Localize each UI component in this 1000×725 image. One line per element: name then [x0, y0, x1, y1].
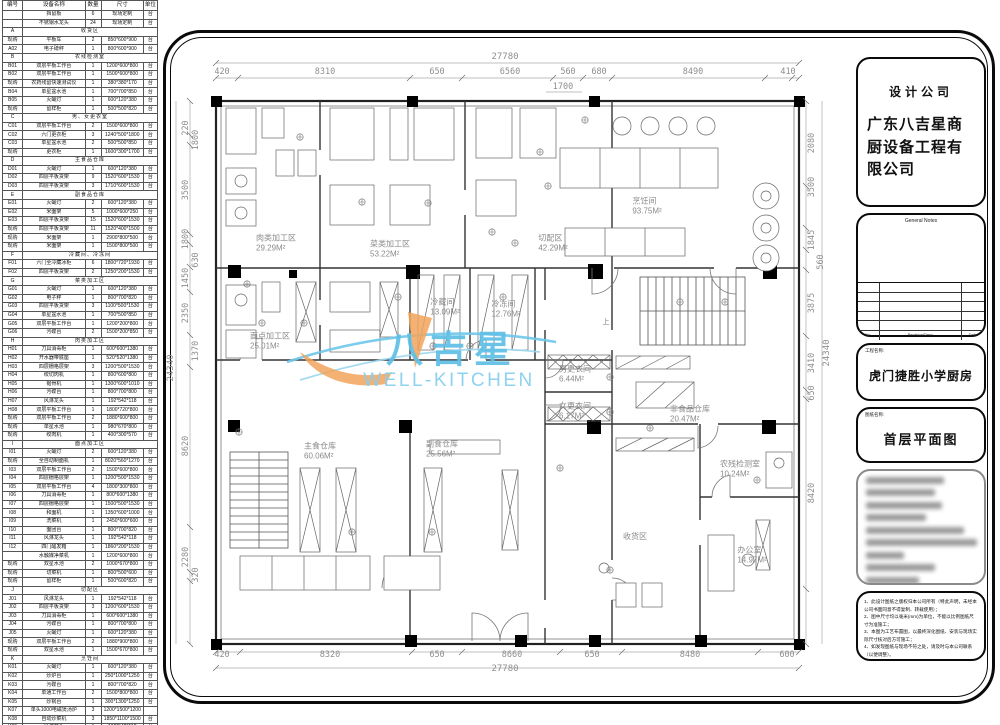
- table-row: 现购切菜机1800*500*600台: [3, 569, 158, 578]
- equipment-table: 编号设备名称数量尺寸单位 挡鼠板6现场定制台不锈钢水龙头24现场定制台A收货区现…: [2, 0, 158, 725]
- titleblock-drawing: 图纸名称: 首层平面图: [856, 407, 986, 463]
- table-row: H05锯骨机11300*600*1010台: [3, 380, 158, 389]
- table-row: D02四层平板货架91520*600*1530台: [3, 174, 158, 183]
- table-row: C03单星盆水池2500*500*850台: [3, 139, 158, 148]
- table-row: 现购绞肉机1400*300*570台: [3, 432, 158, 441]
- column-header: 单位: [143, 1, 157, 11]
- table-row: H01刀具消毒柜1600*600*1380台: [3, 346, 158, 355]
- project-label: 工程名称:: [865, 348, 884, 354]
- column-header: 编号: [3, 1, 23, 11]
- table-section-row: E副食品仓库: [3, 191, 158, 200]
- titleblock-footnotes: 1、此设计图纸之版权归本公司所有（特此声明，未经本公司书面同意不得复制、转载使用…: [856, 591, 986, 661]
- table-row: 现购农药残留快速测试仪1380*380*170台: [3, 79, 158, 88]
- table-row: 现购米面架11500*800*500台: [3, 243, 158, 252]
- table-row: I01灭蝇灯2600*120*380台: [3, 449, 158, 458]
- table-section-row: F冷藏间、冷冻间: [3, 251, 158, 260]
- table-section-row: C男、女更衣室: [3, 114, 158, 123]
- table-row: K02炒炉台1250*1000*1250台: [3, 672, 158, 681]
- table-row: D03四层平板货架31710*600*1530台: [3, 182, 158, 191]
- drawing-name: 首层平面图: [858, 429, 984, 448]
- table-row: K01灭蝇灯1600*120*380台: [3, 664, 158, 673]
- design-company-label: 设计公司: [858, 83, 984, 100]
- table-section-row: H肉类加工区: [3, 337, 158, 346]
- table-row: E03四层平板货架151520*600*1530台: [3, 217, 158, 226]
- titleblock-company: 设计公司 广东八吉星商厨设备工程有限公司: [856, 57, 986, 207]
- table-row: G04单星盆水池1700*500*850台: [3, 311, 158, 320]
- table-section-row: A收货区: [3, 28, 158, 37]
- titleblock-redacted: [856, 469, 986, 585]
- general-notes-label: General Notes: [858, 218, 984, 224]
- table-section-row: G菜类加工区: [3, 277, 158, 286]
- table-row: D01灭蝇灯1600*120*380台: [3, 165, 158, 174]
- revision-no-label: No.: [858, 331, 880, 340]
- table-row: J04污碟台1800*700*800台: [3, 621, 158, 630]
- titleblock-project: 工程名称: 虎门捷胜小学厨房: [856, 343, 986, 401]
- column-header: 数量: [85, 1, 101, 11]
- table-row: G01灭蝇灯1600*120*380台: [3, 286, 158, 295]
- table-row: 现购双星水池11500*670*800台: [3, 646, 158, 655]
- table-row: A02电子磅秤1800*600*900台: [3, 45, 158, 54]
- table-row: 现购双层平板工作台21880*900*800台: [3, 638, 158, 647]
- table-row: B04单星盆水池1700*700*850台: [3, 88, 158, 97]
- table-row: I06刀具消毒柜1800*600*1380台: [3, 492, 158, 501]
- table-row: F02四层平板货架21250*200*1530台: [3, 268, 158, 277]
- table-row: F01六门全冷藏冰柜61800*720*1930台: [3, 260, 158, 269]
- equipment-table-header: 编号设备名称数量尺寸单位: [3, 1, 158, 11]
- company-name: 广东八吉星商厨设备工程有限公司: [867, 114, 975, 182]
- revision-desc-label: Revision/Desc: [880, 331, 962, 340]
- project-name: 虎门捷胜小学厨房: [858, 367, 984, 384]
- table-row: G06污碟台21500*200*850台: [3, 328, 158, 337]
- revision-date-label: Date: [962, 331, 984, 340]
- drawing-label: 图纸名称:: [865, 412, 884, 418]
- table-row: 不锈钢水龙头24现场定制台: [3, 19, 158, 28]
- table-row: 现购全自动制面机18020*560*1270台: [3, 457, 158, 466]
- table-row: 现购米面架12900*800*500台: [3, 234, 158, 243]
- table-row: I08和面机11350*600*1000台: [3, 509, 158, 518]
- table-row: B02双层平板工作台11500*600*800台: [3, 71, 158, 80]
- table-row: I10面团台1800*700*820台: [3, 526, 158, 535]
- table-row: C02六门更衣柜31240*500*1800台: [3, 131, 158, 140]
- sheet-frame: 设计公司 广东八吉星商厨设备工程有限公司 General Notes No. R…: [163, 30, 995, 704]
- table-row: E01灭蝇灯2600*120*380台: [3, 200, 158, 209]
- table-row: H03四层栅格层架31200*500*1530台: [3, 363, 158, 372]
- table-row: 现购单星水池1980*670*800台: [3, 423, 158, 432]
- table-section-row: D主食品仓库: [3, 157, 158, 166]
- table-row: I03双层平板工作台21500*600*800台: [3, 466, 158, 475]
- footnotes-text: 1、此设计图纸之版权归本公司所有（特此声明，未经本公司书面同意不得复制、转载使用…: [858, 593, 984, 664]
- table-row: G03四层平板货架31100*500*1530台: [3, 303, 158, 312]
- table-row: 现购四层平板货架111520*400*1500台: [3, 225, 158, 234]
- table-section-row: K烹饪间: [3, 655, 158, 664]
- table-row: H07风淋龙头1192*542*118台: [3, 397, 158, 406]
- table-row: G05双层平板工作台11200*200*800台: [3, 320, 158, 329]
- table-row: 现购平板车2850*600*900台: [3, 36, 158, 45]
- column-header: 尺寸: [101, 1, 143, 11]
- table-row: B01双层平板工作台11200*600*800台: [3, 62, 158, 71]
- table-row: H04绞切肉机1800*600*800台: [3, 371, 158, 380]
- titleblock-general-notes: General Notes No. Revision/Desc Date: [856, 213, 986, 337]
- table-section-row: I面点加工区: [3, 440, 158, 449]
- table-row: E02米面架51000*600*250台: [3, 208, 158, 217]
- table-section-row: J切配区: [3, 586, 158, 595]
- table-row: H06污碟台1800*700*800台: [3, 389, 158, 398]
- table-row: I11风淋龙头1192*542*118台: [3, 535, 158, 544]
- table-row: K08自动炒菜机31850*1100*1500台: [3, 715, 158, 724]
- table-row: I05双层平板工作台41800*300*800台: [3, 483, 158, 492]
- table-row: 水触媒净菜机11200*600*800台: [3, 552, 158, 561]
- table-row: I09洗菜机12450*600*600台: [3, 518, 158, 527]
- table-row: J01风淋龙头1192*542*118台: [3, 595, 158, 604]
- table-row: 现购双层平板工作台21880*600*800台: [3, 414, 158, 423]
- table-row: 挡鼠板6现场定制台: [3, 11, 158, 20]
- table-row: 现购双星水池21000*670*800台: [3, 561, 158, 570]
- table-row: H08双层平板工作台11800*720*800台: [3, 406, 158, 415]
- table-row: K03污碟台1800*700*820台: [3, 681, 158, 690]
- table-row: G02电子秤1800*700*820台: [3, 294, 158, 303]
- table-section-row: B农残检测室: [3, 53, 158, 62]
- equipment-table-body: 挡鼠板6现场定制台不锈钢水龙头24现场定制台A收货区现购平板车2850*600*…: [3, 11, 158, 725]
- table-row: H02开水器带底座1520*520*1380台: [3, 354, 158, 363]
- table-row: J03刀具消毒柜1600*600*1380台: [3, 612, 158, 621]
- drawing-page: 编号设备名称数量尺寸单位 挡鼠板6现场定制台不锈钢水龙头24现场定制台A收货区现…: [0, 0, 1000, 725]
- table-row: 现购更衣柜11600*300*1700台: [3, 148, 158, 157]
- table-row: J05灭蝇灯1600*120*380台: [3, 629, 158, 638]
- table-row: 现购留样柜1500*600*820台: [3, 578, 158, 587]
- table-row: B05灭蝇灯1600*120*380台: [3, 96, 158, 105]
- table-row: 现购留样柜1500*500*820台: [3, 105, 158, 114]
- table-row: I12四门醒发箱11860*200*1530台: [3, 543, 158, 552]
- column-header: 设备名称: [23, 1, 85, 11]
- table-row: K04单通工作台21500*800*800台: [3, 689, 158, 698]
- table-row: I04四层栅格层架11200*500*1530台: [3, 475, 158, 484]
- table-row: K05炒锅台1300*1300*1250台: [3, 698, 158, 707]
- table-row: J02四层平板货架31200*600*1530台: [3, 603, 158, 612]
- revision-table: No. Revision/Desc Date: [858, 282, 984, 335]
- table-row: I07四层栅格层架11500*500*1530台: [3, 500, 158, 509]
- table-row: K07单头1000电磁煲汤炉31200*1500*1200: [3, 707, 158, 716]
- table-row: C01双层平板工作台21500*600*800台: [3, 122, 158, 131]
